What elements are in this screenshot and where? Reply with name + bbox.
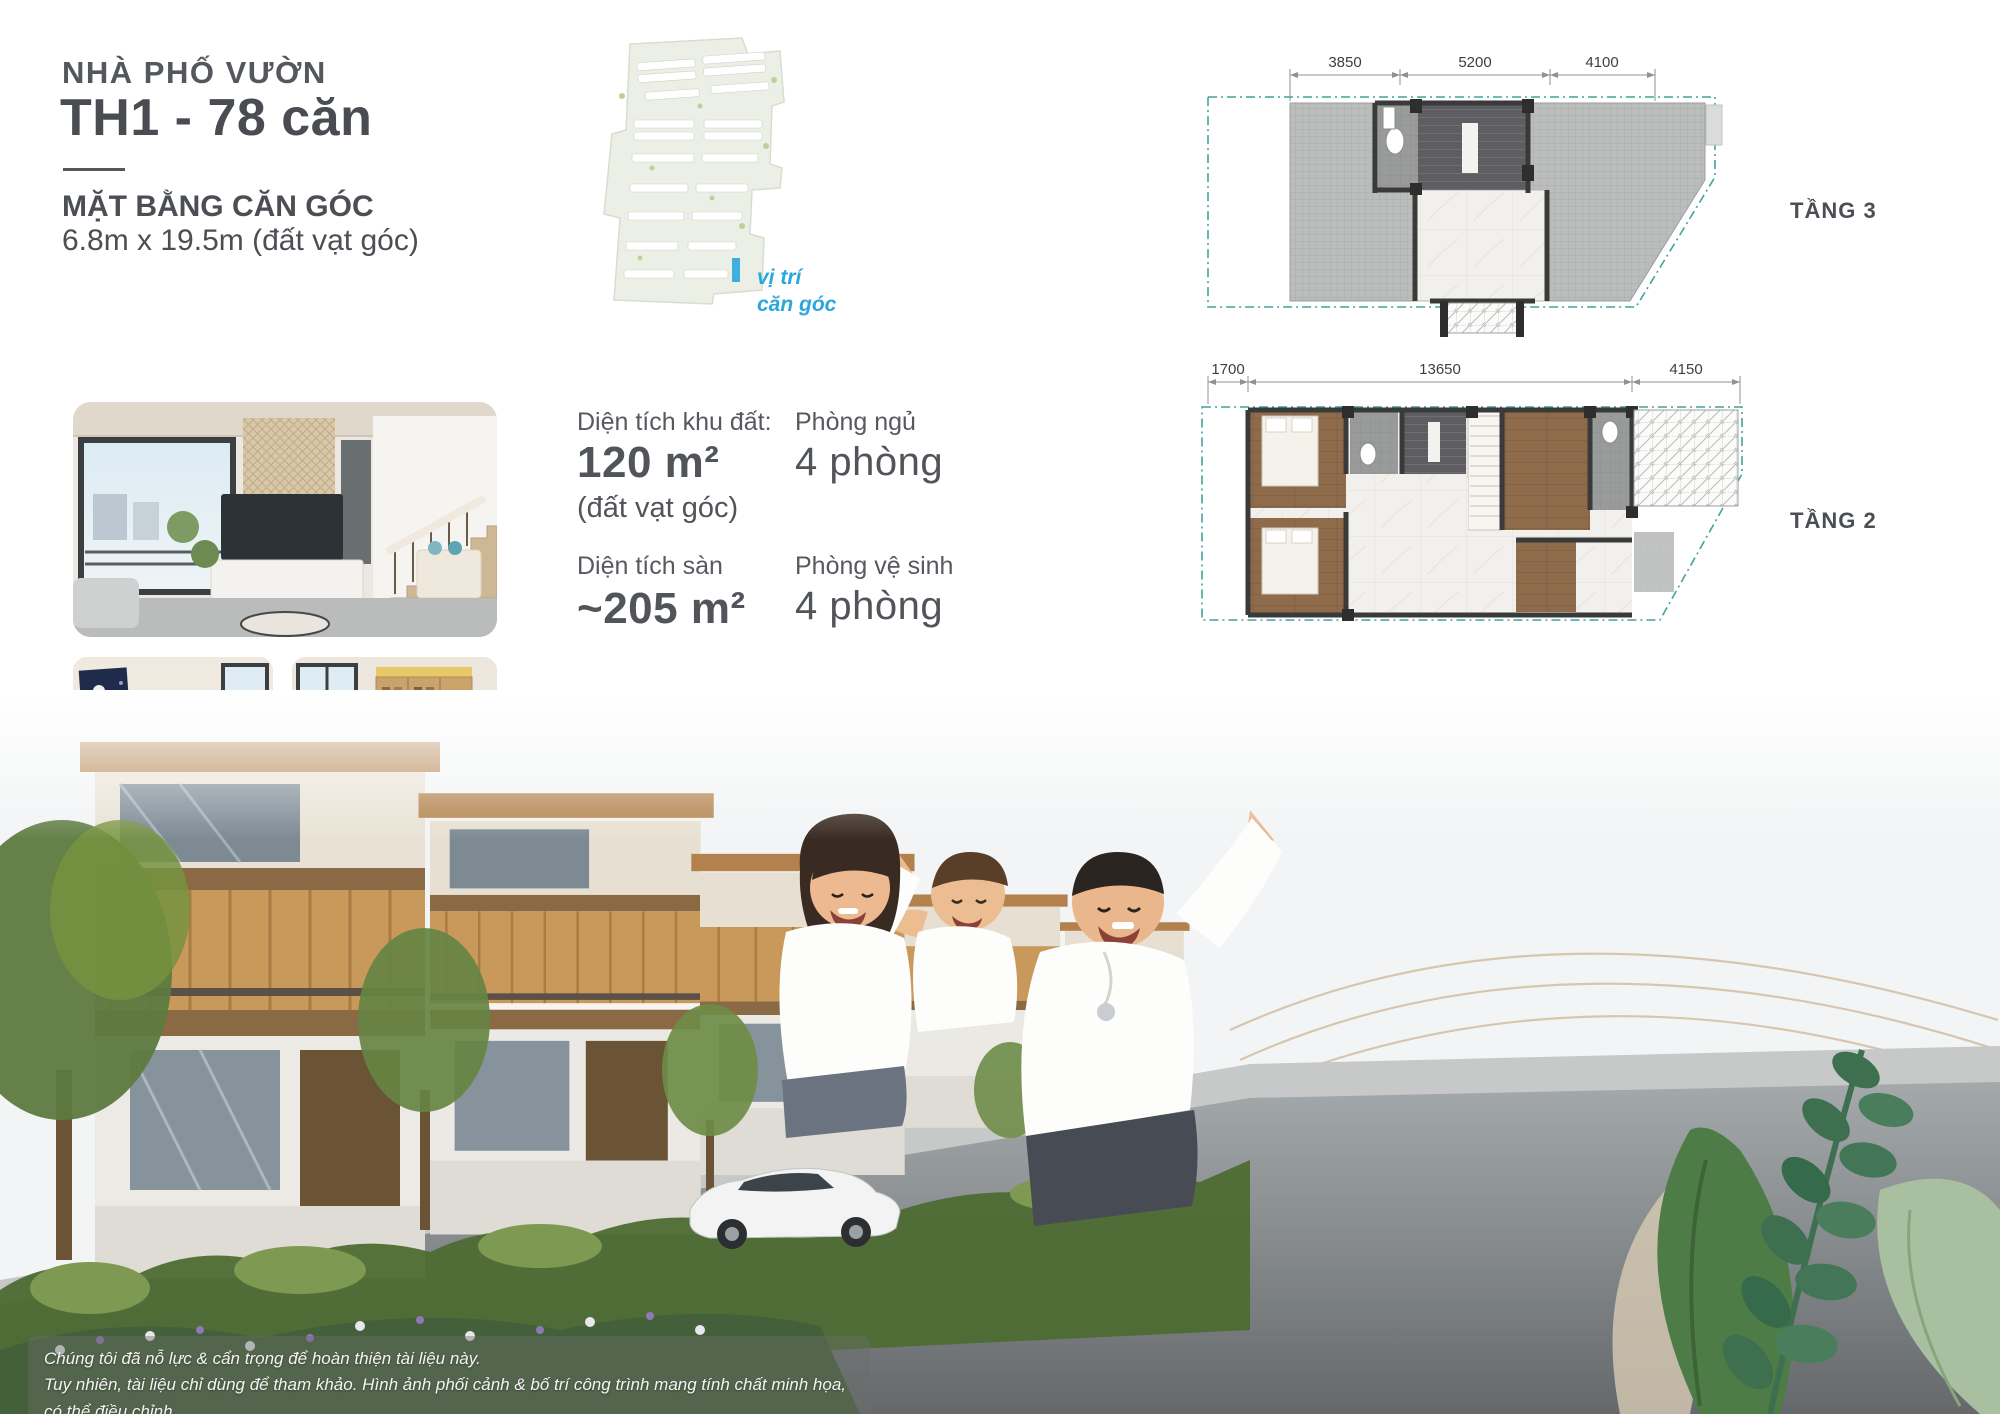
disclaimer-line: Chúng tôi đã nỗ lực & cẩn trọng để hoàn … <box>44 1346 854 1372</box>
floor-area-label: Diện tích sàn <box>577 552 723 581</box>
floorplan-level-2: 1700 13650 4150 <box>1190 352 1770 647</box>
disclaimer-line: Tuy nhiên, tài liệu chỉ dùng để tham khả… <box>44 1372 854 1414</box>
floor-label-2: TẦNG 2 <box>1790 508 1877 534</box>
dimension-row: 1700 13650 4150 <box>1208 361 1740 404</box>
photo-living-room <box>73 402 497 637</box>
corner-unit-caption: vị trí căn góc <box>757 264 836 319</box>
terrace <box>1634 532 1674 592</box>
floor-label-3: TẦNG 3 <box>1790 198 1877 224</box>
page-title: TH1 - 78 căn <box>60 88 372 148</box>
dim-label: 4150 <box>1669 361 1702 378</box>
family-hall <box>1350 478 1468 615</box>
land-area-label: Diện tích khu đất: <box>577 408 772 437</box>
dimension-row: 3850 5200 4100 <box>1290 54 1655 101</box>
dim-label: 5200 <box>1458 54 1491 71</box>
dim-label: 4100 <box>1585 54 1618 71</box>
dim-label: 3850 <box>1328 54 1361 71</box>
street-render <box>0 690 2000 1414</box>
mother-figure <box>779 814 920 1138</box>
dim-label: 1700 <box>1211 361 1244 378</box>
land-area-value: 120 m² <box>577 438 719 488</box>
side-steps <box>1706 105 1722 145</box>
bedroom-4 <box>1516 540 1576 612</box>
project-category: NHÀ PHỐ VƯỜN <box>62 55 327 91</box>
brochure-page: NHÀ PHỐ VƯỜN TH1 - 78 căn MẶT BẰNG CĂN G… <box>0 0 2000 1414</box>
lot-dimensions: 6.8m x 19.5m (đất vạt góc) <box>62 224 419 258</box>
bathroom-2 <box>1350 410 1398 474</box>
floorplan-level-3: 3850 5200 4100 <box>1190 45 1770 345</box>
plan-subtitle: MẶT BẰNG CĂN GÓC <box>62 190 374 224</box>
dim-label: 13650 <box>1419 361 1461 378</box>
title-divider <box>63 168 125 171</box>
bedrooms-label: Phòng ngủ <box>795 408 916 437</box>
land-area-note: (đất vạt góc) <box>577 492 738 525</box>
floor-area-value: ~205 m² <box>577 584 746 634</box>
bathrooms-label: Phòng vệ sinh <box>795 552 953 581</box>
attic-room <box>1415 190 1547 301</box>
corner-unit-marker <box>732 258 740 282</box>
bathrooms-value: 4 phòng <box>795 584 943 629</box>
bedroom-3 <box>1504 410 1590 530</box>
glass-canopy <box>1634 410 1738 506</box>
bedrooms-value: 4 phòng <box>795 440 943 485</box>
disclaimer: Chúng tôi đã nỗ lực & cẩn trọng để hoàn … <box>28 1336 870 1414</box>
balcony <box>1442 303 1520 333</box>
closet-strip <box>1468 410 1502 530</box>
